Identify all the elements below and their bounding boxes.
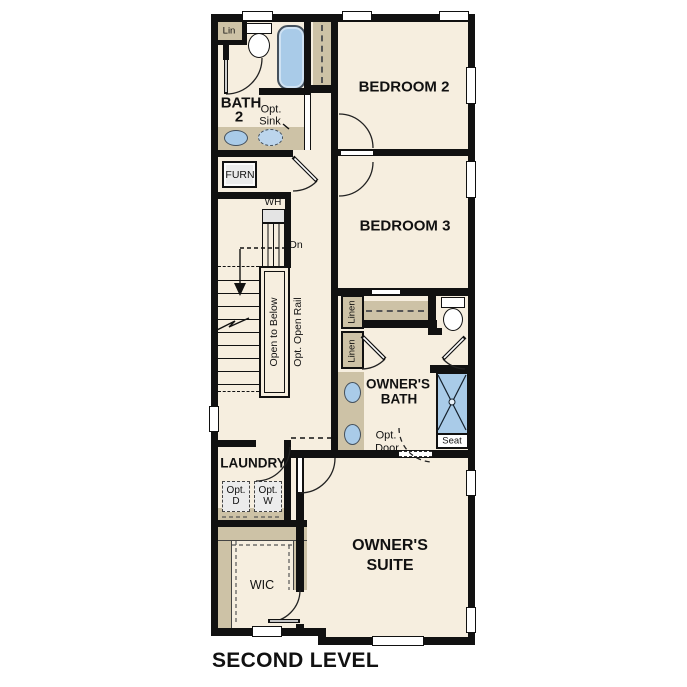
wall [242, 22, 247, 45]
opt-dryer-label-1: Opt. [227, 486, 246, 496]
wall [296, 624, 304, 636]
stairs-lower-run [218, 268, 259, 392]
wall [331, 22, 338, 149]
wall [362, 320, 437, 328]
owners-sink2-icon [344, 424, 361, 445]
owners-sink1-icon [344, 382, 361, 403]
opt-sink-label-2: Sink [259, 117, 280, 128]
door-leaf-gap [297, 458, 303, 492]
room-label-wic: WIC [250, 579, 274, 592]
stairs-upper-run [262, 223, 287, 267]
room-label-owners-bath-1: OWNER'S [366, 377, 430, 391]
bath2-opt-sink-icon [258, 129, 283, 146]
owners-toilet-icon [441, 297, 465, 308]
closet-opening-gap [372, 289, 400, 295]
toilet-bowl-icon [248, 33, 270, 58]
opt-door-label-1: Opt. [376, 431, 397, 442]
room-label-bath2-num: 2 [235, 110, 243, 125]
wall [285, 192, 291, 268]
wall [331, 156, 338, 458]
chase-dashed-line [321, 25, 323, 83]
wall [428, 296, 436, 330]
stairs-top-dashed-edge [218, 266, 259, 267]
opt-dryer-label-2: D [232, 497, 239, 507]
floor-plan-second-level: Lin BATH 2 Opt. Sink FURN WH Dn Open to … [0, 0, 687, 687]
room-label-owners-suite-2: SUITE [366, 558, 413, 574]
room-label-owners-bath-2: BATH [381, 392, 418, 406]
wall [430, 365, 468, 373]
furnace-label: FURN [225, 170, 254, 181]
linen-upper-label: Linen [347, 300, 357, 323]
linen-lower-label: Linen [347, 339, 357, 362]
wall [211, 520, 307, 527]
opt-washer-label-1: Opt. [259, 486, 278, 496]
wic-shelf-left [218, 527, 232, 628]
opt-sink-label-1: Opt. [261, 105, 282, 116]
window [372, 636, 424, 646]
room-label-bedroom2: BEDROOM 2 [359, 80, 450, 95]
water-heater-box [262, 209, 285, 223]
window [252, 626, 282, 637]
shower-seat-label: Seat [442, 436, 462, 446]
window [342, 11, 372, 21]
window [209, 406, 219, 432]
open-to-below-label: Open to Below [269, 298, 280, 367]
window [242, 11, 273, 21]
window [439, 11, 469, 21]
page-title: SECOND LEVEL [212, 649, 379, 673]
door-leaf-gap [304, 95, 311, 150]
wall [223, 44, 229, 60]
water-heater-label: WH [265, 198, 282, 208]
opt-door-opening-dashed [399, 451, 432, 457]
room-label-laundry: LAUNDRY [220, 456, 286, 470]
window [466, 470, 476, 496]
window [466, 67, 476, 104]
room-label-bedroom3: BEDROOM 3 [360, 219, 451, 234]
wall [211, 440, 256, 447]
room-label-owners-suite-1: OWNER'S [352, 538, 428, 554]
bathtub-icon [277, 25, 306, 90]
stairs-down-label: Dn [289, 240, 302, 251]
wall [428, 328, 442, 335]
window [466, 607, 476, 633]
wall [211, 150, 293, 157]
wall [284, 440, 291, 527]
opt-open-rail-label: Opt. Open Rail [293, 297, 304, 366]
lin-closet-label: Lin [223, 26, 236, 36]
stairs-bottom-dashed-edge [218, 391, 259, 392]
opt-door-label-2: Door [375, 444, 399, 455]
bath2-sink-icon [224, 130, 248, 146]
wall [259, 88, 311, 95]
window [466, 161, 476, 198]
door-leaf-gap [341, 150, 373, 156]
wall [211, 14, 218, 636]
wall [309, 85, 333, 93]
owners-toilet-bowl-icon [443, 308, 463, 331]
wic-shelf-top [218, 527, 307, 541]
wall [468, 14, 475, 645]
opt-washer-label-2: W [263, 497, 272, 507]
closet-rod-dashed [366, 310, 424, 312]
